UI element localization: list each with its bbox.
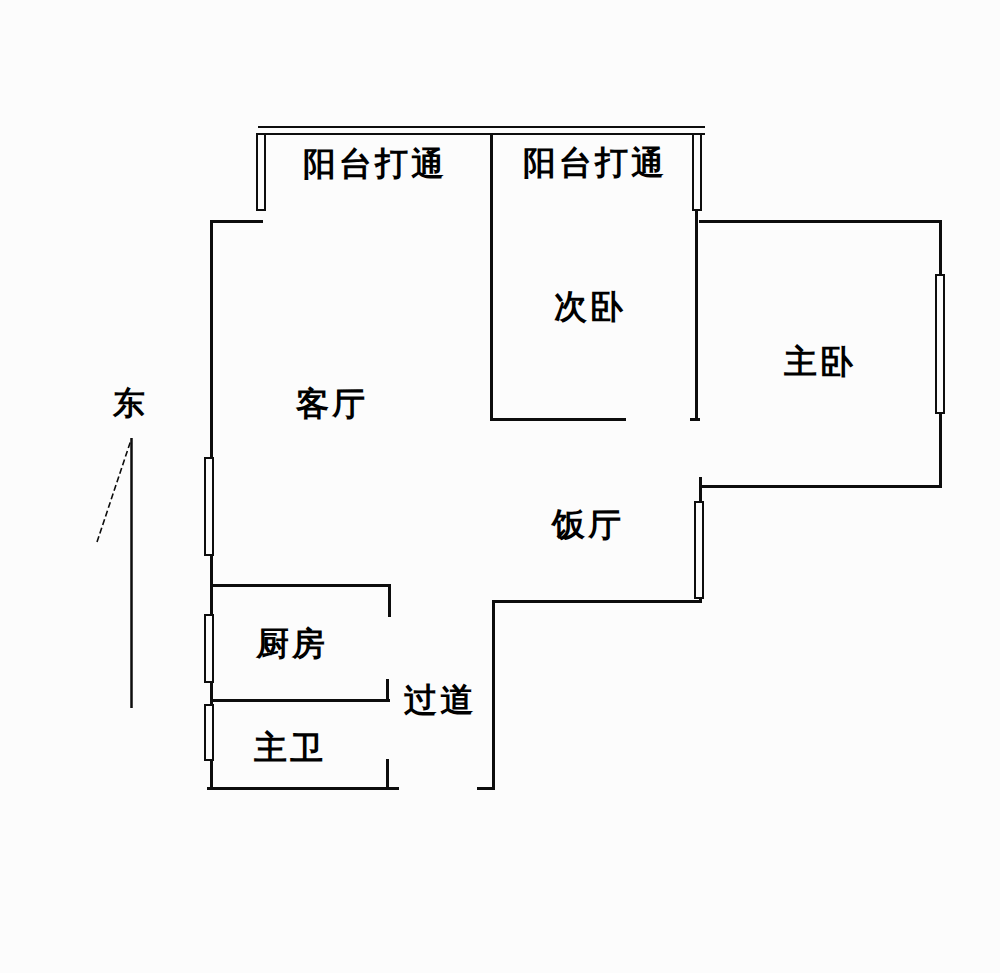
wall-bathroom-door-stub xyxy=(386,759,389,790)
room-label-living-room: 客厅 xyxy=(296,386,368,422)
floor-plan: 阳台打通 阳台打通 次卧 主卧 客厅 饭厅 厨房 过道 主卫 东 xyxy=(0,0,1000,973)
window-bathroom-west xyxy=(204,704,214,761)
room-label-dining-room: 饭厅 xyxy=(552,507,624,543)
wall-corridor-right xyxy=(492,600,495,790)
wall-balcony-divider xyxy=(490,133,493,421)
wall-living-room-top-tick xyxy=(210,220,263,223)
room-label-balcony-left: 阳台打通 xyxy=(303,146,447,182)
wall-master-bedroom-bottom xyxy=(699,485,942,488)
wall-kitchen-door-stub-bottom xyxy=(386,679,389,702)
window-living-room-west xyxy=(204,457,214,556)
window-balcony-right xyxy=(692,133,702,211)
window-balcony-left xyxy=(256,133,266,211)
wall-balcony-top-outer xyxy=(258,126,705,128)
wall-kitchen-top xyxy=(210,584,391,587)
room-label-balcony-right: 阳台打通 xyxy=(523,145,667,181)
wall-secondary-bedroom-bottom xyxy=(493,418,626,421)
compass-east-label: 东 xyxy=(113,385,148,421)
window-kitchen-west xyxy=(204,614,214,683)
room-label-secondary-bedroom: 次卧 xyxy=(554,289,626,325)
wall-balcony-top-inner xyxy=(258,133,705,135)
room-label-master-bathroom: 主卫 xyxy=(254,730,326,766)
wall-master-bedroom-top xyxy=(699,220,942,223)
room-label-kitchen: 厨房 xyxy=(256,626,328,662)
window-dining-room-east xyxy=(694,501,704,599)
wall-kitchen-door-stub-top xyxy=(388,584,391,617)
wall-bathroom-bottom xyxy=(207,787,399,790)
wall-kitchen-bottom xyxy=(210,699,390,702)
compass-arrow-icon xyxy=(85,430,145,715)
room-label-master-bedroom: 主卧 xyxy=(784,344,856,380)
wall-dining-room-bottom xyxy=(493,600,702,603)
room-label-corridor: 过道 xyxy=(404,682,476,718)
window-master-bedroom-east xyxy=(935,274,945,414)
